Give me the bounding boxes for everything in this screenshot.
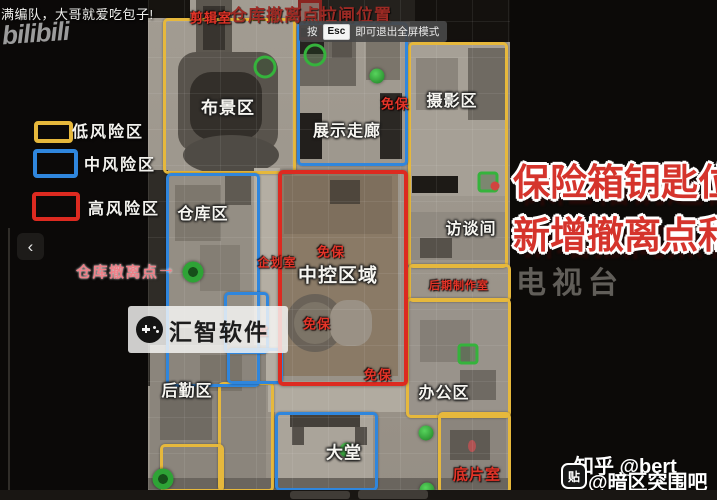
map-grid — [148, 0, 510, 490]
esc-key: Esc — [323, 24, 351, 40]
legend-label-low-risk: 低风险区 — [72, 118, 144, 142]
arrow-right-icon: → — [156, 257, 176, 280]
headline-line1: 保险箱钥匙位置 — [513, 152, 717, 206]
legend-swatch-mid-risk — [33, 149, 78, 178]
headline-line2: 新增撤离点和拉 — [513, 205, 717, 259]
huizhi-watermark-text: 汇智软件 — [169, 313, 269, 347]
left-edge-divider — [8, 228, 10, 500]
legend-swatch-high-risk — [32, 192, 80, 221]
gamepad-icon — [136, 316, 163, 343]
video-frame: 布景区展示走廊摄影区访谈间中控区域仓库区后勤区办公区大堂剪辑室免保免保免保免保企… — [0, 0, 717, 500]
warehouse-evac-note: 仓库撤离点 — [76, 261, 159, 282]
legend-label-high-risk: 高风险区 — [88, 195, 160, 219]
tooltip-suffix: 即可退出全屏模式 — [355, 24, 439, 39]
tooltip-prefix: 按 — [307, 24, 318, 39]
chevron-left-icon: ‹ — [28, 237, 34, 257]
back-button[interactable]: ‹ — [17, 233, 44, 260]
huizhi-watermark: 汇智软件 — [128, 306, 288, 353]
legend-label-mid-risk: 中风险区 — [84, 151, 156, 175]
tieba-icon: 贴 — [561, 463, 587, 489]
tv-station-watermark: 电视台 — [516, 258, 624, 302]
fullscreen-exit-tooltip: 按 Esc 即可退出全屏模式 — [299, 21, 447, 42]
bilibili-logo: bilibili — [1, 16, 70, 52]
bottom-letterbox — [0, 490, 717, 500]
map-viewport[interactable] — [148, 0, 510, 490]
legend-swatch-low-risk — [34, 121, 73, 143]
